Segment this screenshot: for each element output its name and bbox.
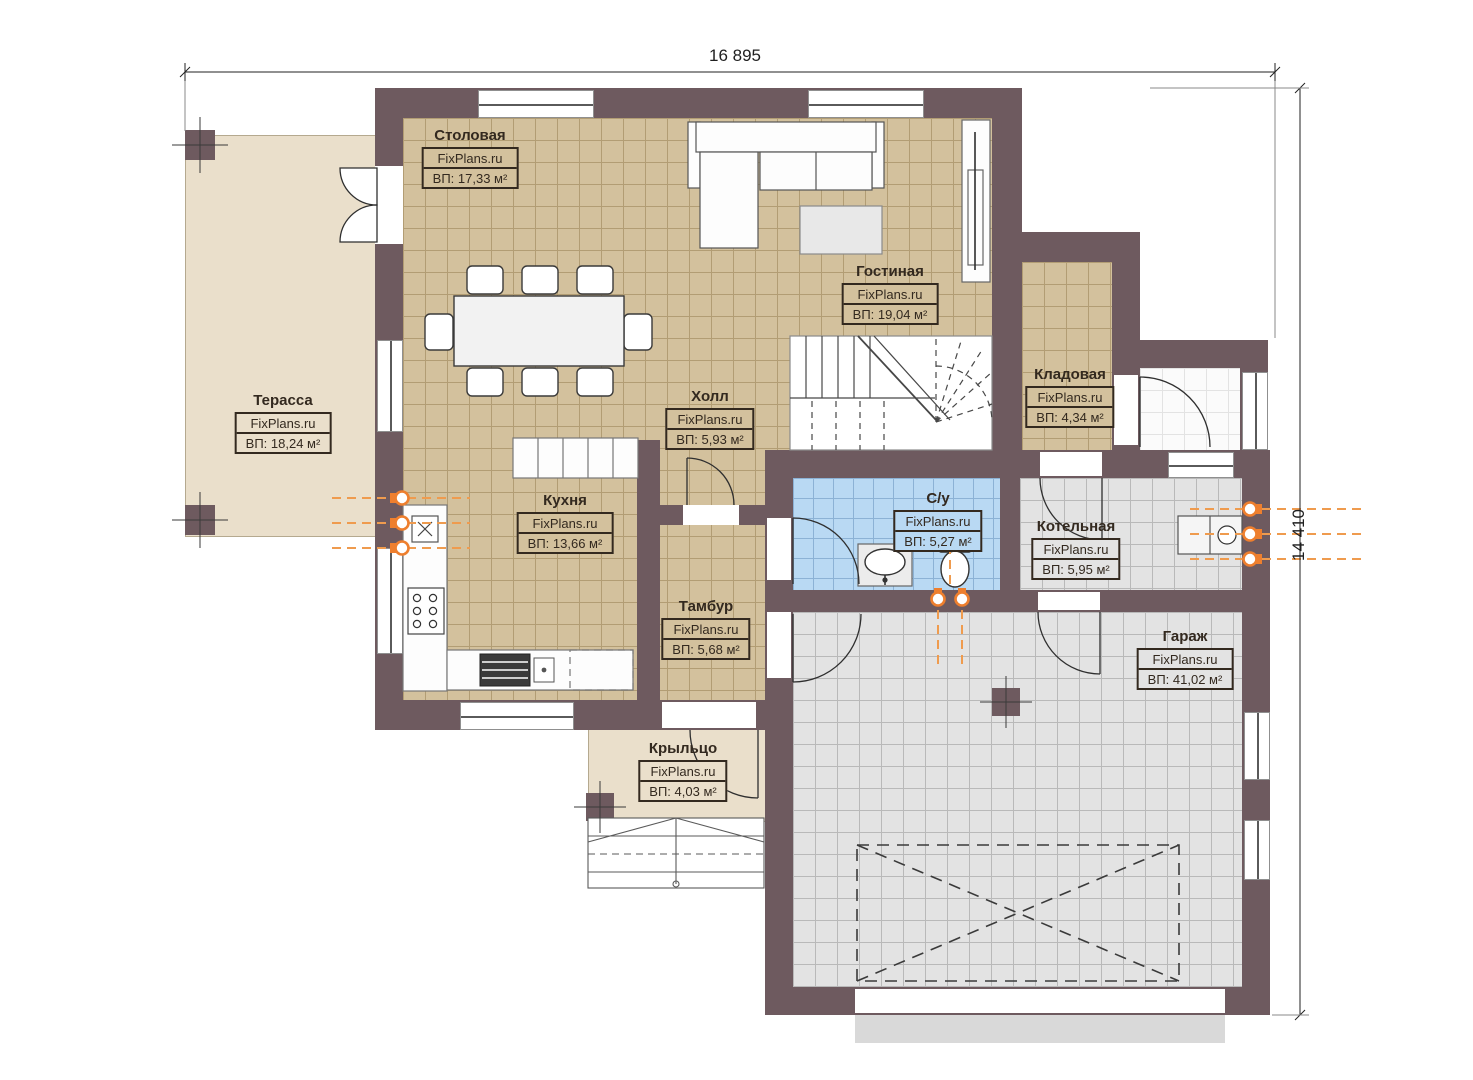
room-name: Тамбур: [679, 598, 733, 615]
room-label-boiler: Котельная FixPlans.ru ВП: 5,95 м²: [1031, 518, 1120, 580]
room-area: ВП: 18,24 м²: [237, 434, 330, 452]
room-name: Терасса: [253, 392, 312, 409]
room-label-bathroom: С/у FixPlans.ru ВП: 5,27 м²: [893, 490, 982, 552]
room-area: ВП: 5,68 м²: [663, 640, 748, 658]
watermark: FixPlans.ru: [1139, 650, 1232, 670]
door-opening: [767, 612, 791, 678]
terrace-column: [185, 130, 215, 160]
room-area: ВП: 13,66 м²: [519, 534, 612, 552]
watermark: FixPlans.ru: [640, 762, 725, 782]
room-name: Кладовая: [1034, 366, 1106, 383]
door-opening: [1114, 375, 1138, 445]
wall: [992, 232, 1140, 262]
room-label-terrace: Терасса FixPlans.ru ВП: 18,24 м²: [235, 392, 332, 454]
porch-steps-icon: [588, 818, 764, 888]
garage-apron: [855, 1015, 1225, 1043]
watermark: FixPlans.ru: [667, 410, 752, 430]
floor-terrace: [185, 135, 405, 537]
window: [808, 90, 924, 118]
room-name: Столовая: [434, 127, 505, 144]
room-name: С/у: [926, 490, 949, 507]
watermark: FixPlans.ru: [424, 149, 517, 169]
wall: [992, 262, 1022, 478]
room-area: ВП: 4,34 м²: [1027, 408, 1112, 426]
room-label-living: Гостиная FixPlans.ru ВП: 19,04 м²: [842, 263, 939, 325]
window: [1168, 452, 1234, 478]
room-area: ВП: 5,93 м²: [667, 430, 752, 448]
watermark: FixPlans.ru: [895, 512, 980, 532]
garage-column: [992, 688, 1020, 716]
room-name: Крыльцо: [649, 740, 717, 757]
terrace-column: [185, 505, 215, 535]
room-name: Гараж: [1163, 628, 1208, 645]
watermark: FixPlans.ru: [237, 414, 330, 434]
room-area: ВП: 4,03 м²: [640, 782, 725, 800]
room-label-dining: Столовая FixPlans.ru ВП: 17,33 м²: [422, 127, 519, 189]
room-label-kitchen: Кухня FixPlans.ru ВП: 13,66 м²: [517, 492, 614, 554]
door-opening: [1040, 452, 1102, 476]
watermark: FixPlans.ru: [663, 620, 748, 640]
window: [1244, 820, 1270, 880]
watermark: FixPlans.ru: [519, 514, 612, 534]
watermark: FixPlans.ru: [1033, 540, 1118, 560]
wall: [1000, 478, 1020, 592]
room-area: ВП: 5,27 м²: [895, 532, 980, 550]
porch-column: [586, 793, 614, 821]
room-name: Холл: [691, 388, 729, 405]
window: [1244, 712, 1270, 780]
garage-gate-opening: [855, 989, 1225, 1013]
room-label-garage: Гараж FixPlans.ru ВП: 41,02 м²: [1137, 628, 1234, 690]
room-label-porch: Крыльцо FixPlans.ru ВП: 4,03 м²: [638, 740, 727, 802]
watermark: FixPlans.ru: [844, 285, 937, 305]
door-opening: [375, 166, 403, 244]
door-opening: [683, 505, 739, 525]
window: [377, 548, 403, 654]
window: [377, 340, 403, 432]
room-label-storage: Кладовая FixPlans.ru ВП: 4,34 м²: [1025, 366, 1114, 428]
wall: [765, 590, 1242, 612]
floor-plan: Терасса FixPlans.ru ВП: 18,24 м² Столова…: [0, 0, 1473, 1080]
dimension-width: 16 895: [600, 46, 870, 66]
wall: [375, 88, 1022, 118]
watermark: FixPlans.ru: [1027, 388, 1112, 408]
room-name: Гостиная: [856, 263, 924, 280]
floor-side-alcove: [1140, 368, 1240, 450]
window: [1242, 372, 1268, 450]
window: [478, 90, 594, 118]
room-area: ВП: 5,95 м²: [1033, 560, 1118, 578]
room-label-hall: Холл FixPlans.ru ВП: 5,93 м²: [665, 388, 754, 450]
room-area: ВП: 19,04 м²: [844, 305, 937, 323]
room-area: ВП: 17,33 м²: [424, 169, 517, 187]
room-name: Кухня: [543, 492, 587, 509]
door-opening: [662, 702, 756, 728]
door-opening: [1038, 592, 1100, 610]
room-label-vestibule: Тамбур FixPlans.ru ВП: 5,68 м²: [661, 598, 750, 660]
wall: [637, 440, 660, 700]
room-name: Котельная: [1037, 518, 1116, 535]
dimension-height: 14 410: [1289, 480, 1313, 590]
window: [460, 702, 574, 730]
room-area: ВП: 41,02 м²: [1139, 670, 1232, 688]
door-opening: [767, 518, 791, 580]
